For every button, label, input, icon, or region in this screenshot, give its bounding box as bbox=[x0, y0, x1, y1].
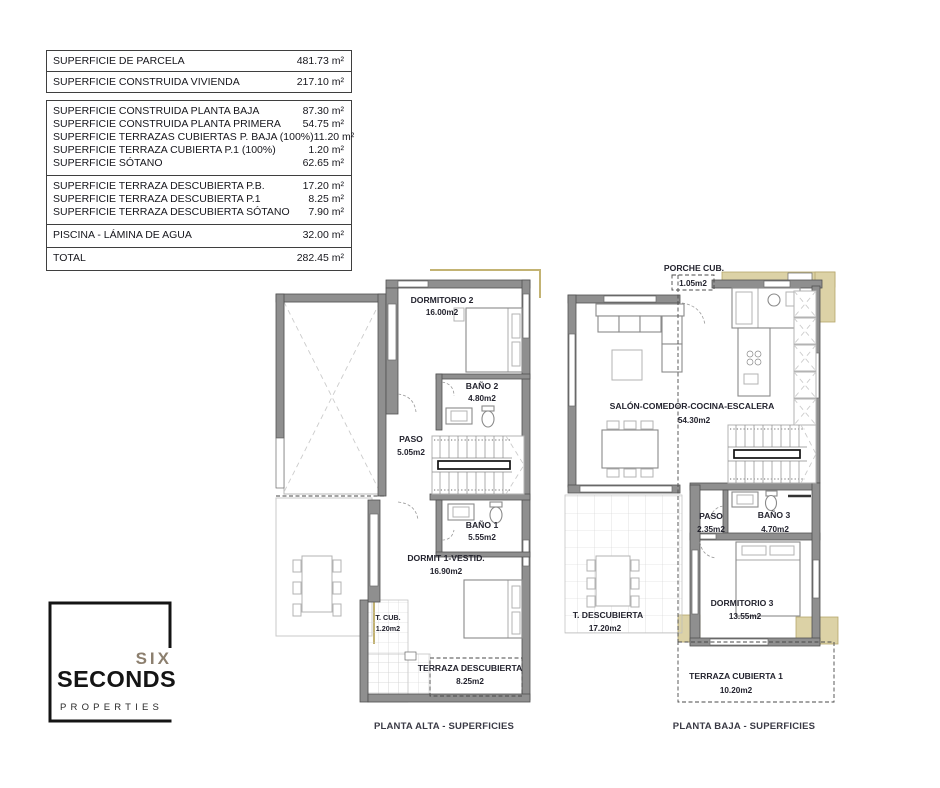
row-value: 11.20 m² bbox=[314, 131, 355, 144]
room-area: 16.90m2 bbox=[430, 567, 463, 576]
room-name: SALÓN-COMEDOR-COCINA-ESCALERA bbox=[610, 400, 775, 411]
row-value: 7.90 m² bbox=[308, 206, 344, 219]
dining-table bbox=[602, 421, 658, 477]
bed-dormit1 bbox=[464, 580, 522, 638]
row-value: 8.25 m² bbox=[308, 193, 344, 206]
row-value: 481.73 m² bbox=[297, 55, 344, 68]
table-box-parcel: SUPERFICIE DE PARCELA 481.73 m² SUPERFIC… bbox=[46, 50, 352, 93]
table-row: SUPERFICIE DE PARCELA 481.73 m² bbox=[47, 51, 351, 71]
terrace-step bbox=[405, 652, 416, 660]
room-area: 17.20m2 bbox=[589, 624, 622, 633]
room-area: 4.70m2 bbox=[761, 525, 789, 534]
table-group-pool: PISCINA - LÁMINA DE AGUA 32.00 m² bbox=[47, 224, 351, 247]
room-area: 5.05m2 bbox=[397, 448, 425, 457]
logo-word-seconds: SECONDS bbox=[57, 666, 176, 692]
row-label: SUPERFICIE TERRAZA DESCUBIERTA P.1 bbox=[53, 193, 261, 206]
row-label: SUPERFICIE TERRAZA DESCUBIERTA P.B. bbox=[53, 180, 265, 193]
six-seconds-logo: SIX SECONDS PROPERTIES bbox=[45, 598, 180, 728]
stairs bbox=[728, 425, 816, 483]
table-group-built: SUPERFICIE CONSTRUIDA PLANTA BAJA 87.30 … bbox=[47, 101, 351, 175]
row-value: 1.20 m² bbox=[308, 144, 344, 157]
double-height-void bbox=[284, 302, 380, 494]
planta-baja-plan: PORCHE CUB. 1.05m2 SALÓN-COMEDOR-COCINA-… bbox=[560, 258, 845, 708]
row-label: PISCINA - LÁMINA DE AGUA bbox=[53, 229, 192, 242]
row-value: 54.75 m² bbox=[303, 118, 344, 131]
table-row: PISCINA - LÁMINA DE AGUA 32.00 m² bbox=[47, 229, 351, 242]
table-row: SUPERFICIE TERRAZA DESCUBIERTA P.1 8.25 … bbox=[47, 193, 351, 206]
room-area: 54.30m2 bbox=[678, 416, 711, 425]
row-label: SUPERFICIE TERRAZAS CUBIERTAS P. BAJA (1… bbox=[53, 131, 314, 144]
room-name: PORCHE CUB. bbox=[664, 263, 724, 273]
floorplan-sheet: { "area_table": { "top": { "rows": [ {"l… bbox=[0, 0, 940, 788]
row-label: SUPERFICIE CONSTRUIDA PLANTA BAJA bbox=[53, 105, 259, 118]
room-name: BAÑO 3 bbox=[758, 510, 791, 520]
terrace-table bbox=[587, 556, 639, 607]
planta-baja-caption: PLANTA BAJA - SUPERFICIES bbox=[634, 721, 854, 732]
room-name: T. DESCUBIERTA bbox=[573, 610, 644, 620]
table-row: SUPERFICIE TERRAZA DESCUBIERTA SÓTANO 7.… bbox=[47, 206, 351, 219]
room-area: 1.05m2 bbox=[679, 279, 707, 288]
table-group-uncovered: SUPERFICIE TERRAZA DESCUBIERTA P.B. 17.2… bbox=[47, 175, 351, 224]
wardrobe-column bbox=[794, 291, 816, 425]
table-row: SUPERFICIE TERRAZAS CUBIERTAS P. BAJA (1… bbox=[47, 131, 351, 144]
row-label: SUPERFICIE DE PARCELA bbox=[53, 55, 185, 68]
room-name: T. CUB. bbox=[375, 613, 400, 622]
coffee-table bbox=[612, 350, 642, 380]
room-area: 2.35m2 bbox=[697, 525, 725, 534]
room-area: 4.80m2 bbox=[468, 394, 496, 403]
room-area: 8.25m2 bbox=[456, 677, 484, 686]
logo-word-properties: PROPERTIES bbox=[60, 702, 163, 713]
table-row: SUPERFICIE TERRAZA CUBIERTA P.1 (100%) 1… bbox=[47, 144, 351, 157]
room-name: BAÑO 1 bbox=[466, 520, 499, 530]
room-name: TERRAZA CUBIERTA 1 bbox=[689, 671, 783, 681]
room-name: DORMIT 1-VESTID. bbox=[407, 553, 484, 563]
row-value: 217.10 m² bbox=[297, 76, 344, 89]
table-box-breakdown: SUPERFICIE CONSTRUIDA PLANTA BAJA 87.30 … bbox=[46, 100, 352, 271]
row-value: 32.00 m² bbox=[303, 229, 344, 242]
row-label: SUPERFICIE TERRAZA DESCUBIERTA SÓTANO bbox=[53, 206, 290, 219]
bathroom3-fixtures bbox=[732, 491, 811, 511]
row-value: 87.30 m² bbox=[303, 105, 344, 118]
stairs bbox=[432, 436, 524, 494]
room-name: DORMITORIO 2 bbox=[411, 295, 474, 305]
row-label: SUPERFICIE CONSTRUIDA VIVIENDA bbox=[53, 76, 240, 89]
row-label: SUPERFICIE TERRAZA CUBIERTA P.1 (100%) bbox=[53, 144, 276, 157]
table-row: SUPERFICIE CONSTRUIDA PLANTA PRIMERA 54.… bbox=[47, 118, 351, 131]
table-row: SUPERFICIE CONSTRUIDA PLANTA BAJA 87.30 … bbox=[47, 105, 351, 118]
row-label: TOTAL bbox=[53, 252, 86, 265]
table-row: SUPERFICIE SÓTANO 62.65 m² bbox=[47, 157, 351, 170]
planta-alta-plan: DORMITORIO 2 16.00m2 BAÑO 2 4.80m2 PASO … bbox=[268, 262, 548, 707]
room-area: 5.55m2 bbox=[468, 533, 496, 542]
room-name: TERRAZA DESCUBIERTA bbox=[418, 663, 523, 673]
room-name: PASO bbox=[399, 434, 423, 444]
room-area: 10.20m2 bbox=[720, 686, 753, 695]
room-area: 1.20m2 bbox=[376, 624, 400, 633]
room-area: 13.55m2 bbox=[729, 612, 762, 621]
room-name: BAÑO 2 bbox=[466, 381, 499, 391]
bathroom2-fixtures bbox=[446, 406, 494, 427]
room-name: DORMITORIO 3 bbox=[711, 598, 774, 608]
table-row: SUPERFICIE CONSTRUIDA VIVIENDA 217.10 m² bbox=[47, 71, 351, 92]
row-label: SUPERFICIE SÓTANO bbox=[53, 157, 163, 170]
row-value: 62.65 m² bbox=[303, 157, 344, 170]
kitchen-counters bbox=[732, 288, 800, 396]
room-area: 16.00m2 bbox=[426, 308, 459, 317]
bed-dormitorio2 bbox=[454, 308, 522, 372]
row-label: SUPERFICIE CONSTRUIDA PLANTA PRIMERA bbox=[53, 118, 281, 131]
room-name: PASO bbox=[699, 511, 723, 521]
row-value: 17.20 m² bbox=[303, 180, 344, 193]
surface-area-table: SUPERFICIE DE PARCELA 481.73 m² SUPERFIC… bbox=[46, 50, 352, 278]
lower-floor-ghost bbox=[276, 498, 374, 644]
table-row: SUPERFICIE TERRAZA DESCUBIERTA P.B. 17.2… bbox=[47, 180, 351, 193]
planta-alta-caption: PLANTA ALTA - SUPERFICIES bbox=[334, 721, 554, 732]
